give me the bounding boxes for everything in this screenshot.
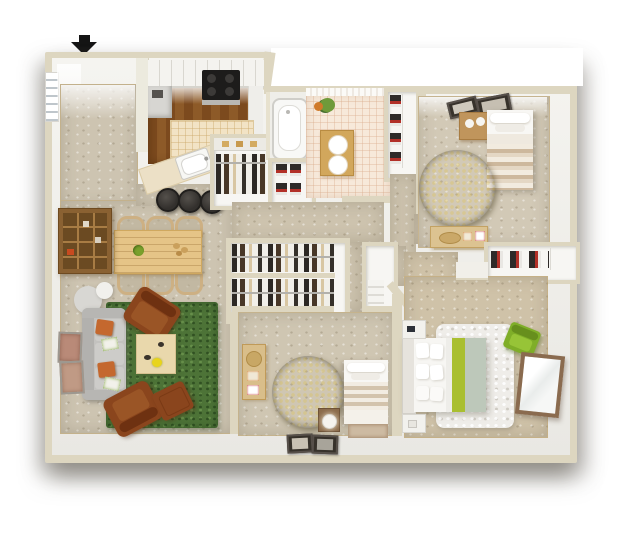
- dining-chair: [175, 272, 203, 295]
- master-pillow: [429, 364, 443, 380]
- table-lamp: [322, 414, 337, 429]
- dining-table: [114, 230, 202, 274]
- small-appliance: [152, 90, 163, 98]
- sofa-pillow: [95, 319, 114, 336]
- bedroom2-east-wall: [392, 294, 402, 436]
- closet-rod: [232, 292, 334, 294]
- vanity-sink: [328, 155, 348, 175]
- shelf-item: [83, 221, 89, 227]
- closet-divider: [402, 94, 403, 168]
- bathroom-vanity: [320, 130, 354, 176]
- hallway-floor: [232, 202, 384, 242]
- hanging-clothes-lower: [232, 279, 334, 309]
- bed-pillow: [495, 124, 525, 132]
- shoe-stack: [276, 164, 287, 198]
- sofa-armrest: [82, 308, 126, 318]
- closet-divider: [550, 248, 551, 270]
- bedroom1-round-rug: [419, 150, 495, 226]
- hanging-clothes: [216, 154, 266, 194]
- bedroom1-nightstand: [459, 112, 488, 140]
- shelf-item: [250, 141, 257, 147]
- bathtub: [272, 98, 308, 160]
- shoe-stack: [390, 95, 401, 167]
- coffee-table: [136, 334, 176, 374]
- wardrobe-divider-wall: [231, 273, 335, 278]
- bedroom2-west-wall: [230, 312, 238, 434]
- dresser-mirror-tray: [246, 351, 262, 367]
- bed-foot: [344, 410, 388, 424]
- bedroom2-dresser: [242, 344, 266, 400]
- table-item-dark: [158, 342, 164, 347]
- burner: [207, 87, 216, 96]
- master-pillow: [430, 344, 444, 360]
- nightstand-item: [407, 326, 415, 332]
- bedroom2-bed: [344, 360, 388, 424]
- kitchen-corner-counter: [148, 86, 172, 118]
- burner: [225, 87, 234, 96]
- dresser-item: [247, 371, 259, 381]
- closet-rod: [232, 256, 334, 258]
- table-plant: [133, 245, 144, 256]
- table-item-yellow: [152, 358, 162, 367]
- entry-light: [61, 85, 135, 119]
- wall-art: [57, 332, 82, 364]
- master-sage-blanket: [465, 338, 486, 412]
- master-pillow: [430, 387, 444, 402]
- shoe-row: [491, 251, 549, 268]
- bed-fold: [487, 134, 533, 144]
- sofa: [82, 308, 126, 400]
- vanity-sink: [328, 135, 348, 155]
- side-table-small: [96, 282, 113, 299]
- dresser-item: [475, 231, 485, 241]
- bedroom2-floor-frame: [287, 433, 314, 453]
- master-leaning-mirror: [515, 352, 565, 418]
- bedroom2-nightstand: [318, 408, 340, 432]
- master-bed: [402, 338, 486, 412]
- table-bowls: [181, 247, 188, 253]
- nightstand-cup: [476, 117, 485, 126]
- master-pillow: [416, 386, 429, 400]
- master-nightstand-top: [402, 320, 426, 339]
- bed-pillow: [347, 363, 385, 372]
- bed-striped-blanket: [344, 382, 388, 410]
- wall-art: [59, 360, 85, 394]
- tub-drain: [286, 110, 290, 114]
- bookshelf: [58, 208, 112, 274]
- burner: [225, 74, 234, 83]
- bedroom1-dresser: [430, 226, 488, 248]
- burner: [207, 74, 216, 83]
- shoe-stack: [290, 164, 301, 198]
- bed-pillow-zone: [487, 110, 533, 134]
- faucet: [204, 156, 209, 161]
- art-inner: [317, 439, 333, 451]
- bedroom2-floor-frame: [312, 435, 339, 455]
- closet-shelf: [214, 138, 268, 151]
- bed-pillow: [490, 113, 530, 123]
- dresser-item: [247, 385, 259, 395]
- master-nightstand-bottom: [402, 414, 426, 433]
- floorplan-canvas: [0, 0, 618, 553]
- closet-rod: [216, 162, 266, 164]
- nightstand-cup: [465, 119, 474, 128]
- dresser-tray: [439, 232, 461, 244]
- bed-pillow-zone: [344, 360, 388, 382]
- bar-stool-1: [156, 188, 180, 212]
- bed-pillow: [351, 373, 380, 380]
- bar-stool-2: [178, 189, 202, 213]
- bathroom-plant: [312, 96, 338, 116]
- shelf-item: [236, 141, 243, 147]
- kitchen-sink: [174, 147, 214, 181]
- plant-flowers: [314, 102, 323, 111]
- plan-notch-cover: [271, 48, 583, 86]
- bathroom-wall-strip: [306, 88, 390, 96]
- linen-shelves: [368, 280, 384, 304]
- shelf-item: [222, 141, 229, 147]
- hanging-clothes-upper: [232, 244, 334, 272]
- dresser-item: [463, 232, 472, 241]
- shelf-item: [95, 237, 101, 243]
- stove-cooktop: [202, 70, 240, 100]
- nightstand-item: [408, 420, 417, 428]
- bedroom2-bench: [348, 424, 388, 438]
- art-inner: [292, 438, 309, 450]
- table-item-dark: [144, 355, 151, 360]
- master-wall-stub: [456, 262, 488, 280]
- master-pillow: [416, 364, 429, 379]
- sofa-pillow: [97, 361, 116, 378]
- shelf-item: [67, 249, 74, 255]
- table-bowls: [173, 243, 180, 249]
- master-pillow: [415, 343, 429, 359]
- stove-front: [202, 100, 240, 105]
- table-bowls: [176, 251, 182, 256]
